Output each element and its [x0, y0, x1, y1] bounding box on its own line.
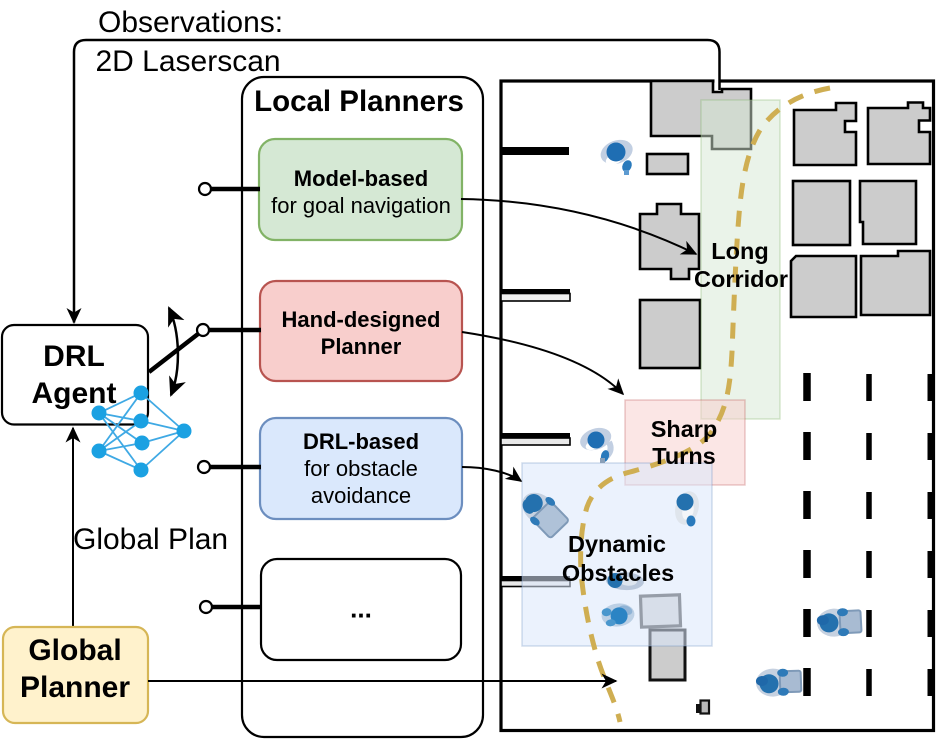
svg-text:Model-based: Model-based — [294, 166, 428, 191]
svg-text:Local Planners: Local Planners — [254, 85, 464, 118]
svg-text:Global Plan: Global Plan — [73, 523, 228, 556]
svg-text:Agent: Agent — [32, 377, 117, 410]
svg-text:for goal navigation: for goal navigation — [271, 193, 451, 218]
svg-text:Turns: Turns — [652, 443, 716, 469]
svg-text:Corridor: Corridor — [694, 266, 788, 292]
svg-text:Hand-designed: Hand-designed — [282, 307, 441, 332]
svg-text:Planner: Planner — [321, 334, 402, 359]
svg-text:Planner: Planner — [20, 671, 130, 704]
svg-text:...: ... — [350, 594, 372, 624]
svg-text:avoidance: avoidance — [311, 483, 411, 508]
svg-text:Obstacles: Obstacles — [562, 560, 674, 586]
svg-text:DRL-based: DRL-based — [303, 429, 419, 454]
svg-text:for obstacle: for obstacle — [304, 456, 418, 481]
svg-text:Dynamic: Dynamic — [568, 531, 666, 557]
svg-text:2D Laserscan: 2D Laserscan — [96, 45, 281, 78]
svg-text:Sharp: Sharp — [651, 416, 718, 442]
svg-text:DRL: DRL — [43, 340, 105, 373]
svg-text:Observations:: Observations: — [98, 6, 283, 39]
svg-text:Long: Long — [711, 238, 768, 264]
svg-text:Global: Global — [28, 634, 121, 667]
